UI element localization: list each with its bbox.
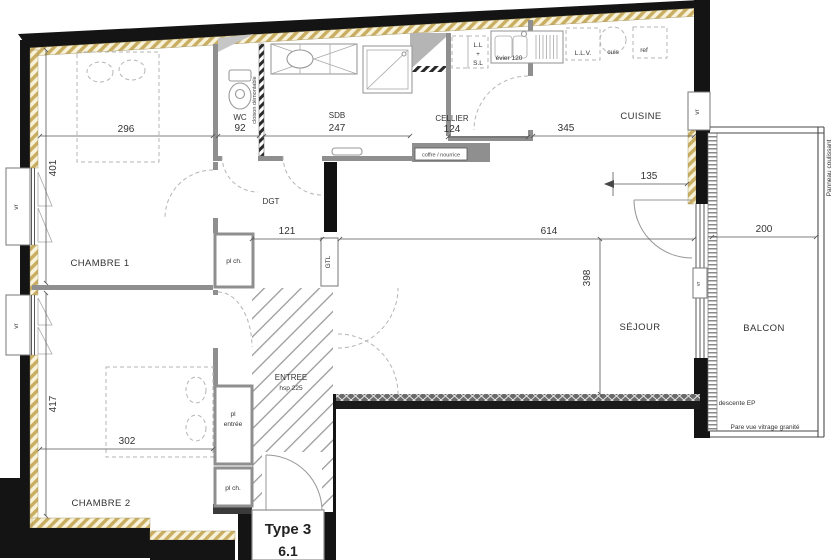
cloison-demontable-label: cloison démontable	[252, 76, 258, 123]
floor-plan: 296 92 247 124 345 614 121 200 302 135 4…	[0, 0, 840, 560]
ch1-wall-b	[213, 218, 218, 233]
cellier-label: CELLIER	[435, 114, 469, 123]
closet-entree-label-2: entrée	[224, 421, 243, 428]
dim-135: 135	[641, 171, 658, 182]
balcony	[708, 127, 824, 437]
radiator	[332, 148, 362, 155]
duct-shaft-hatch	[410, 66, 450, 72]
sejour-opening-arc-b	[338, 334, 398, 394]
pillow-ch1-a	[87, 62, 113, 82]
washer-box	[452, 36, 468, 68]
wc-sdb-partition	[259, 44, 264, 156]
entree-label: ENTREE	[275, 373, 307, 382]
wc-bowl-inner	[236, 90, 245, 99]
window-ch2-glazing	[32, 295, 35, 355]
sink-drainer	[536, 35, 557, 59]
panneau-coulissant-label: Panneau coulissant	[826, 139, 833, 196]
fridge-box	[633, 27, 667, 58]
dgt-label: DGT	[263, 197, 280, 206]
gtl-label: GTL	[325, 255, 332, 268]
left-wall-b	[20, 245, 30, 295]
title-block: Type 3 6.1	[252, 510, 324, 560]
dim-417: 417	[48, 395, 59, 412]
right-insul	[688, 130, 696, 204]
bottom-wall-c	[238, 514, 252, 560]
closet-entree-label-1: pl	[230, 411, 236, 418]
lave-linge-label: L.L	[473, 42, 482, 49]
ch2-wall-b	[213, 348, 218, 385]
window-ch1-sash-b	[38, 208, 52, 242]
llv-label: L.L.V.	[575, 50, 592, 57]
bed-ch1	[77, 52, 159, 162]
exterior-walls	[0, 0, 710, 560]
bathtub-drain	[287, 50, 313, 68]
descente-ep-label: descente EP	[719, 400, 756, 407]
pillow-ch2-b	[186, 415, 206, 441]
ref-label: ref	[640, 47, 648, 54]
ch1-door-arc	[165, 170, 213, 218]
evier-label: évier 120	[496, 55, 523, 62]
plus-label: +	[476, 51, 480, 58]
vr-label-cuisine: vr	[694, 108, 701, 114]
entree-hsp-label: hsp 225	[279, 385, 303, 392]
closets	[215, 234, 253, 506]
facade-strip	[708, 133, 717, 431]
floor-plan-page: 296 92 247 124 345 614 121 200 302 135 4…	[0, 0, 840, 560]
bottom-wall-a	[20, 528, 150, 558]
vr-label-ch1: vr	[13, 203, 20, 209]
pare-vue-label: Pare vue vitrage granité	[730, 424, 799, 431]
lot-number: 6.1	[278, 543, 298, 559]
dim-247: 247	[329, 123, 346, 134]
shower-head	[402, 52, 406, 56]
sejour-bottom-hatch	[330, 394, 700, 401]
left-insul-c	[30, 355, 38, 528]
cuis-label: cuis	[607, 49, 619, 56]
wc-tank	[229, 70, 251, 81]
chambre2-label: CHAMBRE 2	[71, 498, 130, 509]
gtl-wall	[324, 162, 337, 232]
window-ch1-glazing	[32, 168, 35, 245]
bottom-wall-b	[150, 540, 235, 560]
dgt-top-wall-b	[258, 156, 283, 161]
dim-200: 200	[756, 224, 773, 235]
left-wall-a	[20, 40, 30, 168]
dgt-top-wall-a	[213, 156, 222, 161]
dim-124: 124	[444, 124, 461, 135]
sejour-label: SÉJOUR	[620, 322, 661, 333]
balcony-rails	[710, 127, 824, 437]
cellier-door-arc	[474, 76, 528, 130]
ch2-wall-a	[213, 290, 218, 295]
dim-345: 345	[558, 123, 575, 134]
right-wall-a	[694, 0, 710, 92]
entree-zone	[252, 288, 333, 512]
closet-ch2-label: pl ch.	[225, 485, 241, 492]
balcony-door-arc	[634, 200, 692, 258]
sdb-door-arc	[283, 156, 322, 195]
furniture	[77, 27, 667, 457]
bottom-insul-a	[32, 518, 150, 528]
dim-296: 296	[118, 124, 135, 135]
vr-label-sejour: vr	[696, 282, 702, 287]
type-label: Type 3	[265, 521, 311, 538]
closet-ch1-label: pl ch.	[226, 258, 242, 265]
dim-135-arrow	[604, 180, 614, 188]
chambre1-label: CHAMBRE 1	[70, 258, 129, 269]
wc-left-wall	[213, 44, 218, 156]
sejour-opening-arc-a	[338, 288, 398, 348]
pillow-ch2-a	[186, 377, 206, 403]
ch1-ch2-wall	[32, 285, 213, 290]
top-wall	[18, 0, 700, 48]
window-ch2-sash-a	[38, 298, 52, 325]
left-insul-a	[30, 50, 38, 168]
cuisine-label: CUISINE	[620, 111, 661, 122]
dim-401: 401	[48, 159, 59, 176]
window-ch2-sash-b	[38, 327, 52, 354]
seche-linge-label: S.L	[473, 60, 483, 67]
ch2-door-arc	[218, 292, 252, 347]
pillow-ch1-b	[119, 60, 145, 80]
dgt-top-wall-c	[322, 156, 412, 161]
balcon-label: BALCON	[743, 323, 784, 334]
vr-label-ch2: vr	[13, 322, 20, 328]
dim-92: 92	[234, 123, 246, 134]
windows	[6, 92, 710, 358]
dim-614: 614	[541, 226, 558, 237]
ch1-wall-a	[213, 162, 218, 170]
coffre-nourrice-label: coffre / nourrice	[422, 153, 460, 159]
sink-faucet	[522, 32, 527, 37]
bottom-insul-b	[150, 531, 235, 540]
dim-302: 302	[119, 436, 136, 447]
wc-door-arc	[222, 156, 258, 192]
dim-398: 398	[582, 269, 593, 286]
sdb-label: SDB	[329, 111, 345, 120]
wc-label: WC	[233, 113, 247, 122]
dim-121: 121	[279, 226, 296, 237]
